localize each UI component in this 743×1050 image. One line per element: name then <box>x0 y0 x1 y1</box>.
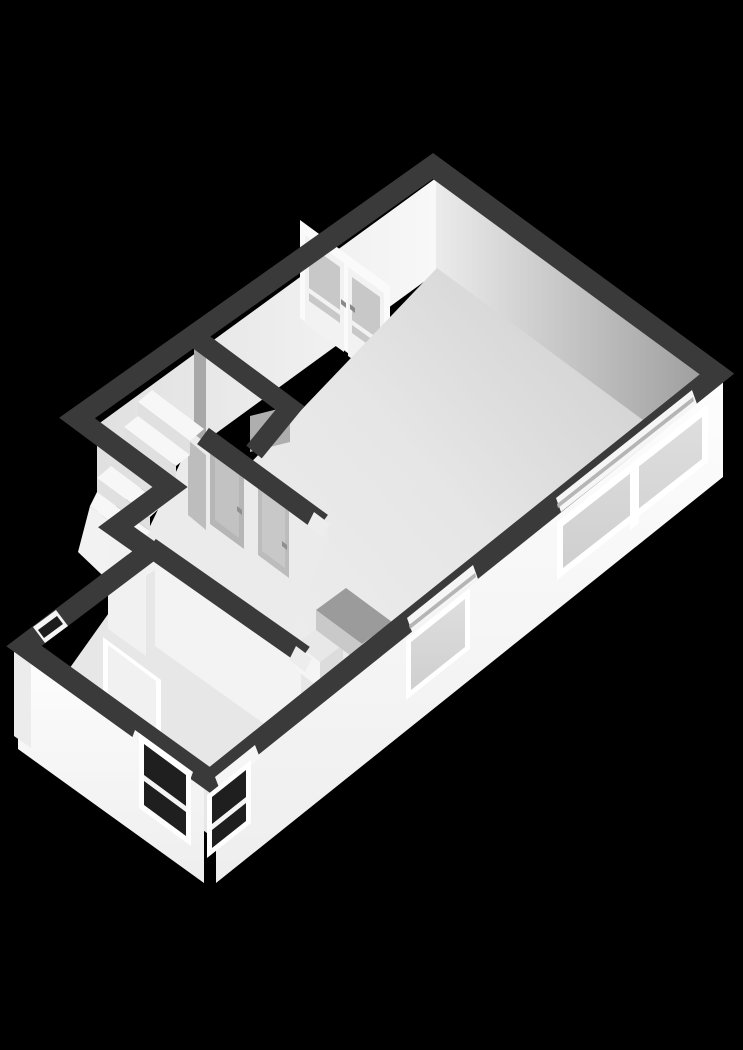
floorplan-3d-canvas <box>0 0 743 1050</box>
stairs-stringer-face <box>188 440 206 530</box>
floorplan-3d-stage <box>0 0 743 1050</box>
window-1-mullion <box>630 461 639 530</box>
